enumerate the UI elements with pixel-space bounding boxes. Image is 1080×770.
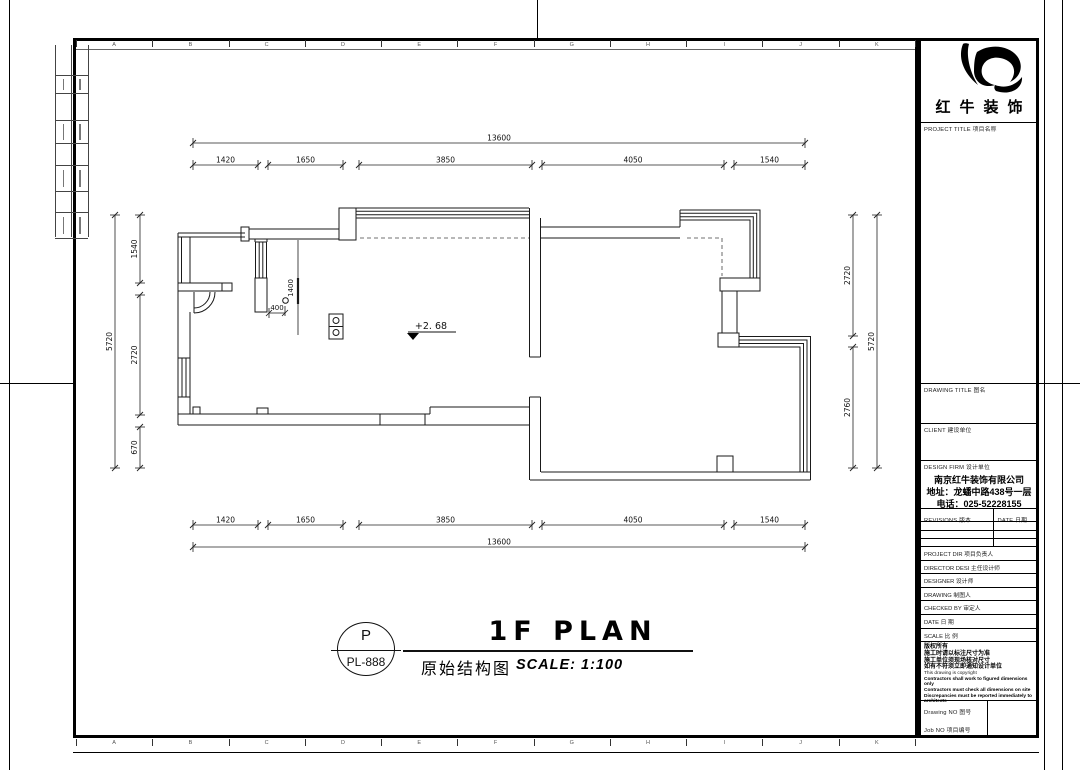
note-line: Contractors shall work to figured dimens…	[924, 677, 1037, 688]
dimension-label: 3850	[436, 156, 455, 165]
floor-plan-svg: +2. 68 1400 400 136001420165038504050154…	[0, 0, 1080, 770]
staff-row: DRAWING 制图人	[921, 587, 1037, 601]
firm-address: 地址：龙蟠中路438号一层	[921, 486, 1037, 498]
walls	[178, 208, 811, 480]
dimension-label: 1650	[296, 516, 315, 525]
dimension-label: 4050	[623, 516, 642, 525]
bubble-divider	[331, 650, 401, 651]
dimension-label: 1540	[760, 516, 779, 525]
titleblock: 红牛装饰 PROJECT TITLE 项目名称 DRAWING TITLE 图名…	[921, 38, 1039, 738]
interior-dim-400: 400	[270, 304, 283, 312]
dimension-label: 5720	[867, 332, 876, 351]
staff-row: DIRECTOR DESI 主任设计师	[921, 560, 1037, 574]
drawing-no-label: Drawing NO 图号	[921, 706, 986, 716]
dimension-label: 2720	[843, 266, 852, 285]
company-name: 红牛装饰	[921, 96, 1037, 117]
staff-row: PROJECT DIR 项目负责人	[921, 546, 1037, 560]
drawing-code: PL-888	[337, 655, 395, 669]
dimension-label: 1420	[216, 156, 235, 165]
dimension-label: 1540	[760, 156, 779, 165]
client-label: CLIENT 建设单位	[921, 424, 1037, 434]
design-firm-info: 南京红牛装饰有限公司 地址：龙蟠中路438号一层 电话：025-52228155	[921, 474, 1037, 510]
plan-title: 1F PLAN	[448, 616, 698, 647]
plan-scale: SCALE: 1:100	[516, 657, 623, 673]
title-underline	[403, 650, 693, 652]
note-line: 版权所有	[924, 644, 1037, 651]
bubble-letter: P	[337, 627, 395, 644]
dimension-label: 4050	[623, 156, 642, 165]
level-marker: +2. 68	[407, 321, 456, 340]
level-marker-value: +2. 68	[415, 321, 447, 332]
staff-row: CHECKED BY 审定人	[921, 600, 1037, 614]
drawing-title-label: DRAWING TITLE 图名	[921, 384, 1037, 394]
revisions-label: REVISIONS 版本	[921, 514, 990, 524]
drawing-number-row: Drawing NO 图号 Job NO 项目编号	[921, 700, 1037, 735]
dimension-label: 2760	[843, 398, 852, 417]
dimension-label: 670	[130, 440, 139, 455]
dimension-label: 1420	[216, 516, 235, 525]
dimension-label: 1650	[296, 156, 315, 165]
interior-dim-1400: 1400	[287, 279, 295, 297]
note-line: 施工时请以标注尺寸为准	[924, 651, 1037, 658]
note-line: Contractors must check all dimensions on…	[924, 688, 1037, 694]
dimension-chains: 1360014201650385040501540142016503850405…	[105, 134, 882, 553]
dimension-label: 13600	[487, 538, 511, 547]
dimension-label: 1540	[130, 239, 139, 258]
job-no-label: Job NO 项目编号	[921, 724, 971, 734]
staff-row: DATE 日 期	[921, 614, 1037, 628]
dimension-label: 5720	[105, 332, 114, 351]
dimension-label: 2720	[130, 345, 139, 364]
revisions-date-label: DATE 日期	[994, 514, 1027, 524]
plan-subtitle: 原始结构图	[421, 655, 511, 679]
company-logo-icon	[933, 42, 1029, 94]
staff-row: SCALE 比 例	[921, 628, 1037, 641]
staff-row: DESIGNER 设计师	[921, 573, 1037, 587]
notes-block: 版权所有 施工时请以标注尺寸为准 施工单位须现场核对尺寸 如有不符须立即通知设计…	[921, 641, 1037, 700]
design-firm-label: DESIGN FIRM 设计单位	[921, 461, 1037, 471]
drawing-sheet: { "sheet": { "grid_letters": ["A","B","C…	[0, 0, 1080, 770]
firm-name: 南京红牛装饰有限公司	[921, 474, 1037, 486]
dimension-label: 13600	[487, 134, 511, 143]
project-title-label: PROJECT TITLE 项目名称	[921, 123, 1037, 133]
dimension-label: 3850	[436, 516, 455, 525]
